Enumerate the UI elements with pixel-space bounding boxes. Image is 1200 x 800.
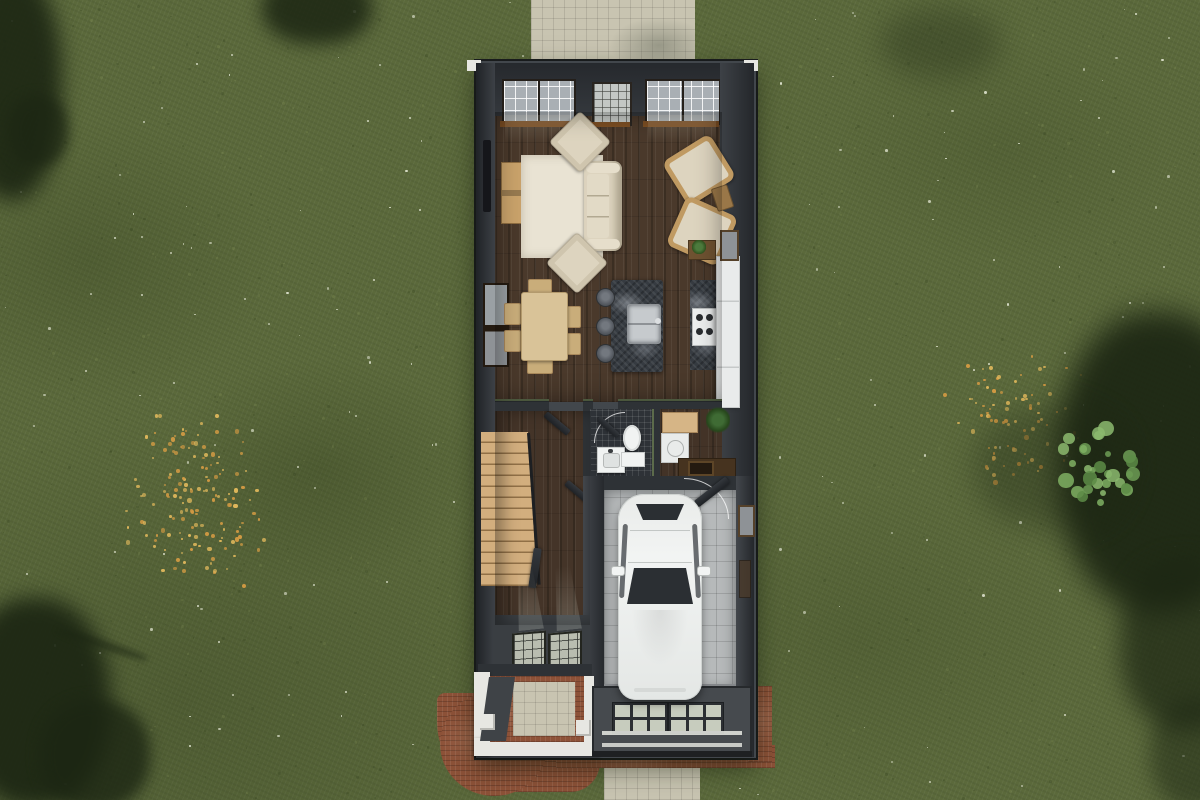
burner-2 [706, 314, 713, 321]
kitchen-side-window [720, 230, 739, 261]
mudroom-bench [662, 412, 698, 433]
garage-door-pane [706, 705, 721, 717]
burner-1 [696, 314, 703, 321]
garage-door-stripe-2 [602, 743, 742, 747]
bush-leaf-cluster [1058, 443, 1069, 454]
aerial-floor-plan-render [0, 0, 1200, 800]
washer-lid [667, 440, 684, 457]
dining-chair-left-1 [504, 303, 521, 325]
car-front-trim [634, 688, 686, 692]
bush-leaf-cluster [1083, 471, 1097, 485]
bush-leaf-cluster [1097, 499, 1104, 506]
garage-door-pane [671, 720, 686, 732]
range-stove [692, 308, 718, 346]
garage-door-pane [706, 720, 721, 732]
bush-leaf-cluster [1105, 451, 1112, 458]
island-faucet [655, 318, 661, 324]
bush-leaf-cluster [1083, 485, 1092, 494]
dining-table [521, 292, 568, 361]
garage-door-pane [633, 705, 648, 717]
white-car [616, 492, 704, 704]
garage-door-pane [615, 720, 630, 732]
car-roof-seam [630, 530, 690, 531]
island-sink [627, 304, 661, 344]
garage-door-bottom-edge [592, 751, 752, 757]
vanity-faucet [608, 449, 613, 453]
wall-tv [483, 140, 491, 212]
car-mirror-right [697, 566, 711, 576]
sofa-cushions [587, 174, 609, 238]
hall-bath-wall [583, 411, 591, 484]
porch-concrete-pad [513, 682, 575, 736]
garage-side-window-2 [739, 560, 751, 598]
dining-wall-window [483, 283, 509, 367]
bush-leaf-cluster [1126, 467, 1141, 482]
bush-leaf-cluster [1080, 445, 1088, 453]
bush-leaf-cluster [1094, 461, 1106, 473]
shelf-plant [692, 240, 706, 254]
garage-door-windows-left [612, 702, 668, 734]
bush-leaf-cluster [1094, 431, 1103, 440]
toilet-bowl [623, 425, 641, 451]
utility-sink [688, 461, 714, 476]
media-console [501, 162, 523, 224]
car-roof-seam2 [628, 562, 692, 563]
burner-4 [706, 328, 713, 335]
bush-leaf-cluster [1063, 433, 1074, 444]
bush-leaf-cluster [1121, 483, 1132, 494]
garage-door-pane [689, 705, 704, 717]
glass-door-center [592, 82, 632, 126]
garage-door-pane [650, 720, 665, 732]
porch-post-left [480, 714, 495, 730]
garage-door-pane [689, 720, 704, 732]
car-hood-shading [626, 610, 694, 690]
bush-leaf-cluster [1069, 460, 1076, 467]
garage-door-stripe-1 [602, 731, 742, 735]
toilet-tank [621, 452, 645, 467]
bar-stool-3 [596, 344, 615, 363]
mudroom-plant [706, 406, 730, 434]
bush-leaf-cluster [1058, 473, 1074, 489]
sofa-arm-top [586, 163, 620, 173]
garage-door-pane [633, 720, 648, 732]
garage-door-pane [650, 705, 665, 717]
garage-door-pane [615, 705, 630, 717]
porch-post-right [576, 720, 591, 736]
bush-leaf-cluster [1106, 469, 1119, 482]
sofa [584, 161, 622, 251]
cabinets-refrigerator [716, 256, 740, 408]
vanity-basin [603, 453, 620, 468]
bar-stool-2 [596, 317, 615, 336]
garage-side-window [738, 505, 755, 537]
toilet [621, 425, 643, 467]
dining-chair-left-2 [504, 330, 521, 352]
bar-stool-1 [596, 288, 615, 307]
bush-leaf-cluster [1100, 490, 1106, 496]
garage-door-pane [671, 705, 686, 717]
garage-door-windows-right [668, 702, 724, 734]
car-mirror-left [611, 566, 625, 576]
burner-3 [696, 328, 703, 335]
bush-leaf-cluster [1126, 455, 1138, 467]
